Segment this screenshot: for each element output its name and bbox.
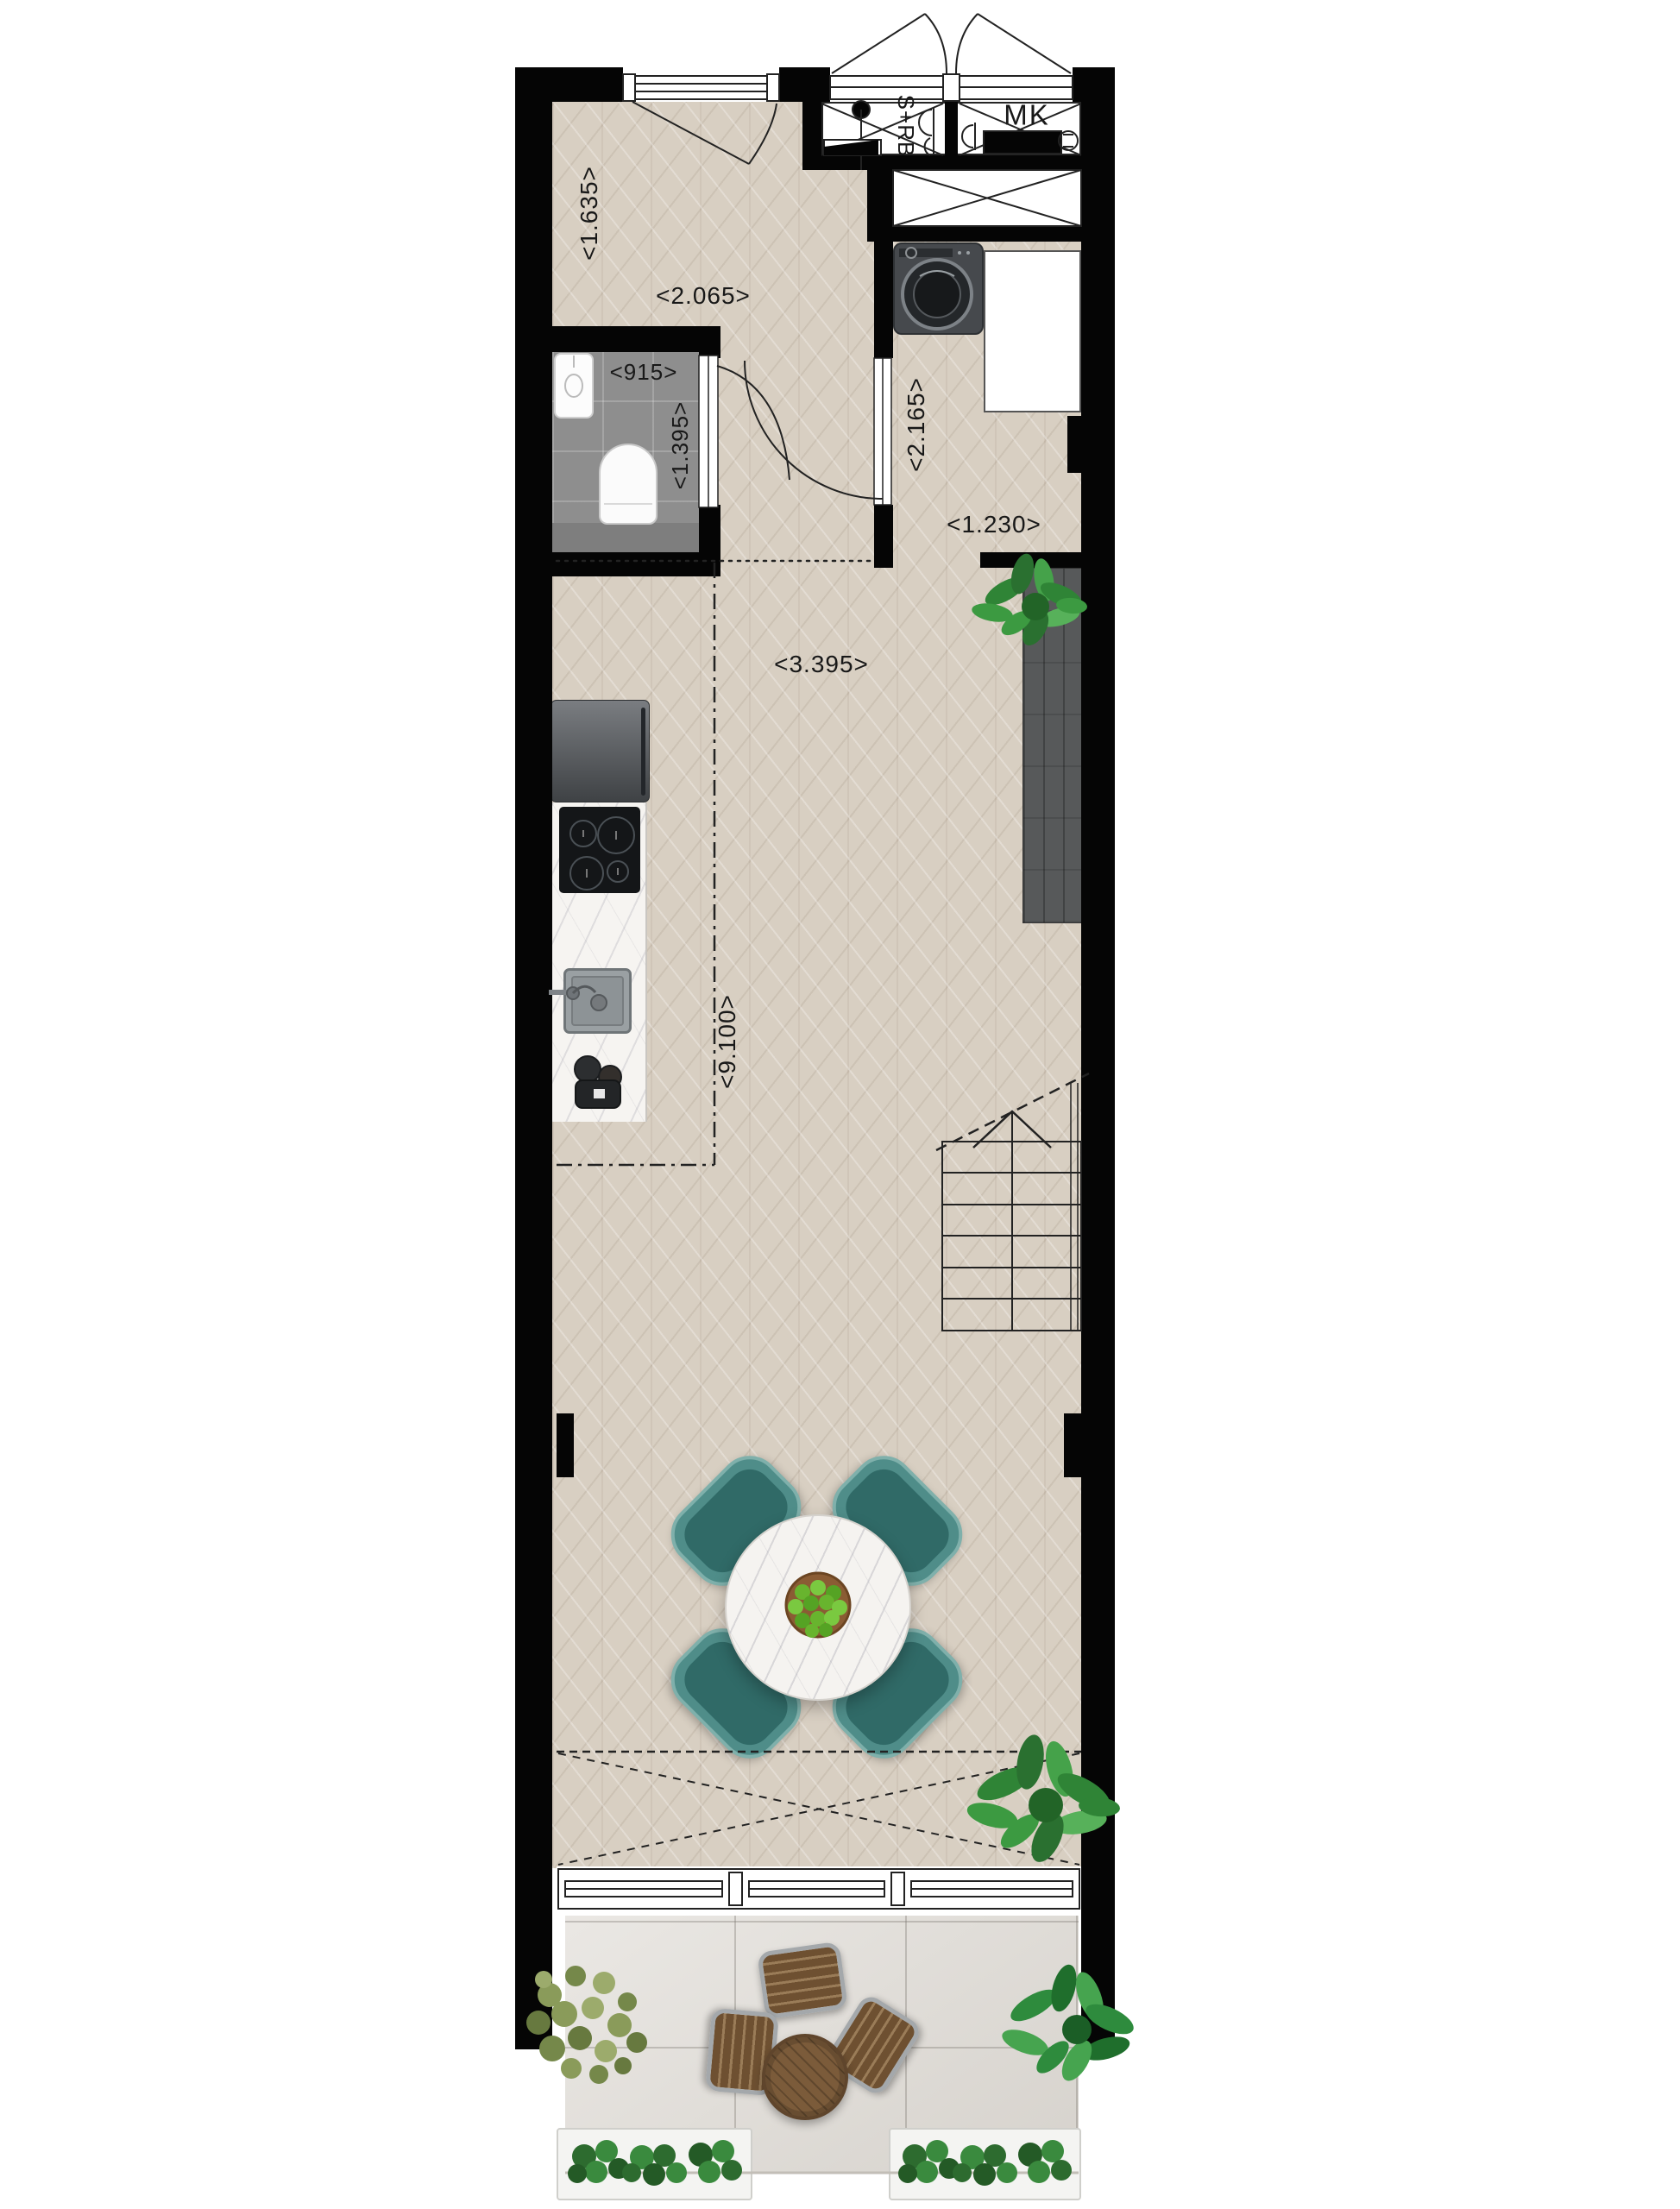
bottom-window-backing: [557, 1866, 1081, 1916]
wall-top: [515, 67, 623, 102]
fridge-handle: [641, 708, 645, 796]
wall-laundry-bottom: [980, 552, 1081, 568]
shaft-label: S+RB: [895, 95, 917, 158]
toilet-icon: [599, 444, 658, 525]
washbasin-icon: [554, 353, 594, 419]
dimension-label: <1.635>: [577, 166, 601, 261]
wall-top: [1073, 67, 1115, 102]
dimension-label: <9.100>: [715, 994, 739, 1089]
dimension-label: <3.395>: [774, 652, 869, 677]
wall-bathroom-bottom: [535, 552, 699, 576]
dimension-label: <1.230>: [947, 513, 1041, 537]
wall-left-stub: [515, 1911, 552, 2049]
dimension-label: <2.065>: [656, 284, 751, 308]
wall-shaft-band: [802, 155, 1081, 170]
planter-box: [889, 2128, 1081, 2200]
wall-laundry-left: [874, 242, 893, 358]
dimension-label: <915>: [610, 361, 678, 383]
cooktop-icon: [559, 807, 640, 893]
wall-right: [1081, 67, 1115, 1911]
sideboard-cabinet: [1022, 568, 1083, 923]
kitchen-sink-icon: [563, 968, 632, 1034]
wall-bathroom-top: [535, 326, 720, 352]
wall-top: [779, 67, 830, 102]
wall-laundry-left: [874, 505, 893, 568]
sink-basin: [571, 976, 624, 1026]
floor-plan-page: S+RB MK <1.635> <2.065> <915> <1.395> <2…: [0, 0, 1680, 2209]
terrace-chair: [757, 1942, 848, 2020]
wall-bathroom-right: [699, 326, 720, 358]
terrace-table-icon: [762, 2034, 848, 2120]
dining-table-icon: [725, 1514, 911, 1701]
wall-pier: [1067, 416, 1081, 473]
fridge-icon: [551, 700, 650, 802]
washing-machine-icon: [893, 242, 984, 335]
bathroom-shower-band: [552, 523, 699, 552]
dimension-label: <1.395>: [669, 401, 691, 489]
laundry-counter: [984, 250, 1081, 412]
planter-box: [557, 2128, 752, 2200]
wall-pier: [557, 1413, 574, 1477]
dimension-label: <2.165>: [904, 377, 928, 472]
wall-meter-divider: [945, 102, 958, 155]
wall-bathroom-right: [699, 505, 720, 576]
entrance-door: [830, 14, 1073, 101]
wall-pier: [1064, 1413, 1081, 1477]
meter-cupboard-label: MK: [1004, 101, 1050, 129]
wall-right-stub: [1081, 1911, 1115, 2049]
wall-shaft-band: [867, 226, 1081, 242]
